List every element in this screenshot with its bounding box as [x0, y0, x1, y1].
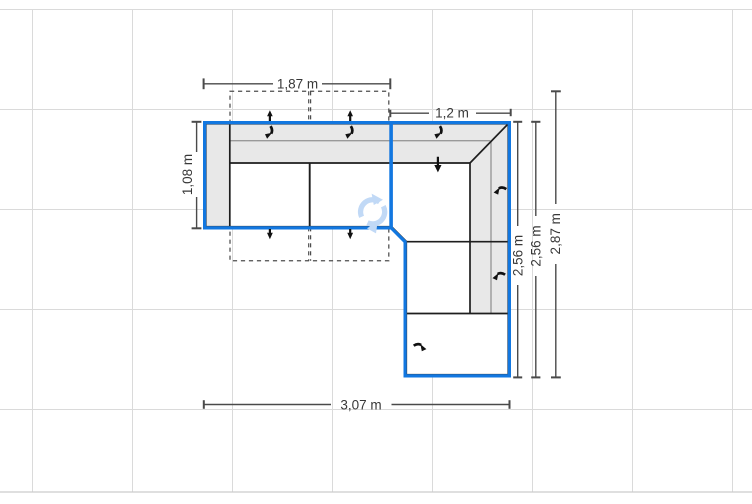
svg-text:2,56 m: 2,56 m — [528, 225, 543, 266]
svg-text:1,08 m: 1,08 m — [180, 154, 195, 195]
svg-text:2,87 m: 2,87 m — [548, 213, 563, 254]
svg-text:1,87 m: 1,87 m — [277, 76, 318, 91]
svg-text:3,07 m: 3,07 m — [340, 397, 381, 412]
svg-text:2,56 m: 2,56 m — [510, 235, 525, 276]
svg-text:1,2 m: 1,2 m — [435, 105, 469, 120]
